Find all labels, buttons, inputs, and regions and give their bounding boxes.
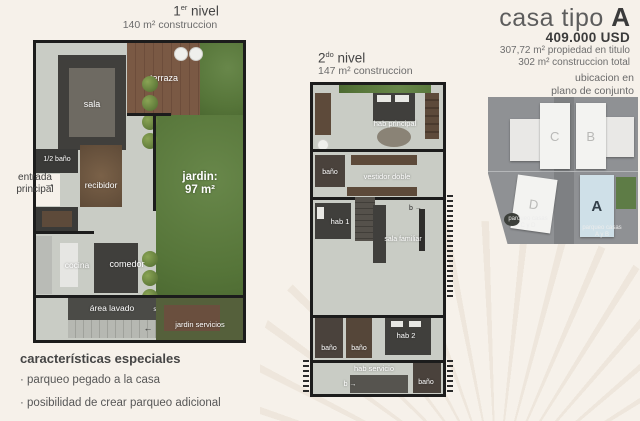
edge-hatching (447, 195, 453, 300)
dining-label: comedor (100, 259, 154, 269)
stairs-level2 (355, 197, 375, 241)
parking-ab-label: parqueo casas A y B (576, 225, 628, 239)
house-price: 409.000 USD (410, 30, 630, 45)
stairs-down-marker-lower: b → (337, 381, 363, 389)
site-green-patch (616, 177, 636, 209)
plan1-title: 1er nivel (140, 3, 252, 19)
plan1-title-num: 1 (173, 4, 181, 19)
bush-icon (142, 95, 158, 111)
service-room-label: hab servicio (337, 365, 411, 374)
bathroom-2-label: baño (315, 345, 343, 353)
parking-cd-line1: parqueo casas (502, 216, 554, 223)
site-building-c: C (540, 103, 570, 169)
bathroom-3-label: baño (346, 345, 372, 353)
wardrobe (315, 93, 331, 135)
parking-ab-line1: parqueo casas (576, 225, 628, 232)
stairs-down-arrow-icon: → (349, 381, 356, 388)
dressing-wardrobe (351, 155, 417, 165)
garden-main (156, 115, 243, 298)
site-plan-caption-line1: ubicacion en (474, 72, 634, 85)
wall-segment (313, 149, 443, 152)
wall-segment (36, 295, 243, 298)
plan2-title-num: 2 (318, 51, 326, 66)
flyer-canvas: 1er nivel 140 m² construccion terraza ja… (0, 0, 640, 421)
entrance-label: entrada principal (4, 172, 66, 196)
service-garden-label: jardin servicios (158, 321, 242, 330)
wall-segment (127, 113, 171, 116)
site-plan-map: C B D A parqueo casas C y D parqueo casa… (488, 97, 638, 244)
pillow (409, 321, 421, 327)
site-building-b-label: B (586, 129, 595, 144)
garden-top-strip (200, 43, 243, 115)
half-bath-label: 1/2 baño (36, 156, 78, 164)
edge-hatching (303, 360, 309, 394)
stairs-down-arrow-icon: → (415, 205, 422, 212)
pillow (377, 95, 391, 102)
foyer-label: recibidor (72, 181, 130, 191)
terrace-chair-icon (189, 47, 203, 61)
feature-item: · posibilidad de crear parqueo adicional (20, 397, 221, 409)
site-wing (606, 117, 634, 157)
site-wing (510, 119, 540, 161)
dressing-room-label: vestidor doble (349, 173, 425, 182)
balcony-planter (339, 85, 431, 93)
wall-segment (313, 197, 443, 200)
plan2-subtitle: 147 m² construccion (318, 65, 413, 77)
plan1-title-rest: nivel (187, 4, 219, 19)
entry-closet-shelf (42, 211, 72, 227)
house-title-bold: A (611, 2, 630, 32)
living-room-label: sala (66, 99, 118, 109)
service-bathroom-label: baño (409, 379, 443, 387)
parking-cd-label: parqueo casas C y D (502, 216, 554, 230)
foyer-rug (80, 145, 122, 207)
house-title: casa tipo A (410, 2, 630, 33)
house-detail-line1: 307,72 m² propiedad en titulo (410, 45, 630, 56)
pillow (391, 321, 403, 327)
edge-hatching (447, 360, 453, 394)
site-plan-caption-line2: plano de conjunto (474, 85, 634, 98)
wall-segment (153, 115, 156, 211)
stairs-down-letter: b (344, 381, 348, 388)
site-divider-line (488, 171, 638, 172)
entrance-label-line1: entrada (4, 172, 66, 184)
bedroom2-label: hab 2 (377, 332, 435, 341)
stairs-down-marker-upper: b → (409, 205, 422, 212)
house-title-light: casa tipo (499, 4, 611, 32)
pillow (395, 95, 409, 102)
site-building-b: B (576, 103, 606, 169)
kitchen-counter (36, 236, 52, 294)
site-building-d-label: D (528, 196, 540, 212)
laundry-label: área lavado (72, 304, 152, 314)
plan2-title-rest: nivel (334, 51, 366, 66)
bathroom-master-label: baño (315, 169, 345, 177)
garden-label-line1: jardin: (160, 171, 240, 184)
closet-shelving (425, 93, 439, 139)
parking-cd-line2: C y D (502, 223, 554, 230)
garden-label: jardin: 97 m² (160, 171, 240, 197)
parking-ab-line2: A y B (576, 232, 628, 239)
house-detail-line2: 302 m² construccion total (410, 57, 630, 68)
site-building-c-label: C (550, 129, 560, 144)
master-rug (377, 127, 411, 147)
family-sofa (373, 205, 386, 263)
dressing-wardrobe (347, 187, 417, 196)
wall-segment (36, 231, 94, 234)
plan1-subtitle: 140 m² construccion (100, 19, 240, 31)
stairs-down-letter: b (409, 205, 413, 212)
plan2-title: 2do nivel (318, 50, 365, 66)
site-building-a-label: A (591, 198, 602, 215)
bush-icon (142, 270, 158, 286)
garden-label-line2: 97 m² (160, 184, 240, 197)
service-bathroom (413, 363, 441, 393)
bush-icon (142, 76, 158, 92)
terrace-chair-icon (174, 47, 188, 61)
tv-console (419, 209, 425, 251)
family-room-label: sala familiar (367, 236, 439, 244)
plan2-title-sup: do (326, 50, 334, 59)
site-plan-caption: ubicacion en plano de conjunto (474, 72, 634, 98)
entrance-arrow-icon: → (44, 178, 55, 190)
feature-item: · parqueo pegado a la casa (20, 374, 160, 386)
features-title: características especiales (20, 351, 180, 366)
floor-plan-level-2: hab principal baño vestidor doble hab 1 … (310, 82, 446, 397)
entrance-label-line2: principal (4, 184, 66, 196)
